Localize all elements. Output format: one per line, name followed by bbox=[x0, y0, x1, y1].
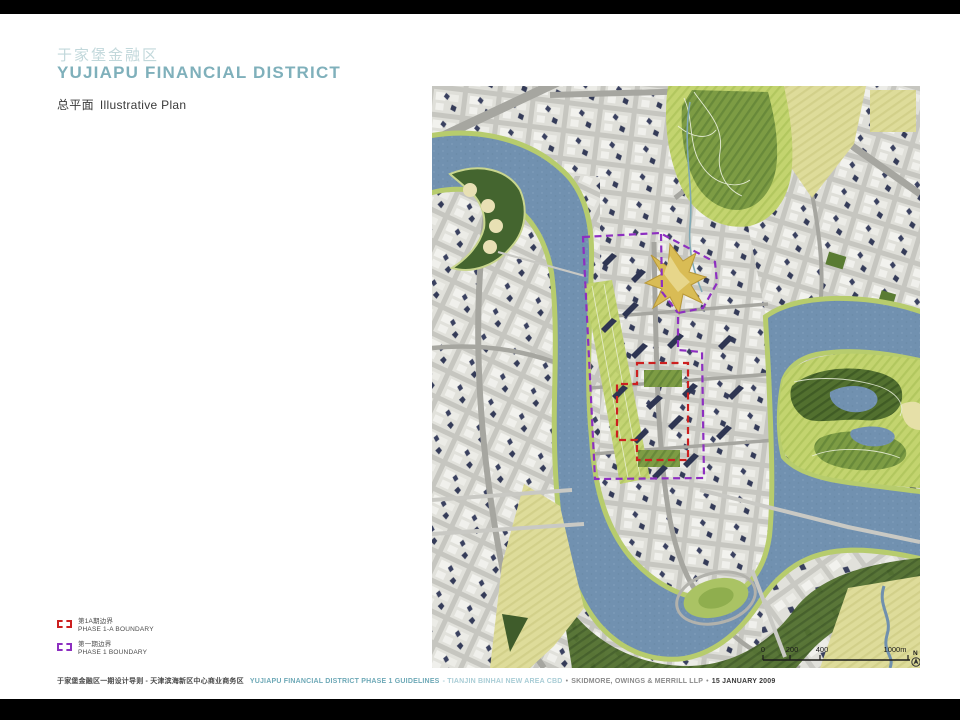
phase-1a-boundary-swatch bbox=[57, 620, 72, 628]
subtitle-english: Illustrative Plan bbox=[100, 98, 186, 112]
legend-label-zh: 第1A期边界 bbox=[78, 618, 154, 626]
scale-tick-400: 400 bbox=[816, 645, 829, 654]
legend-label: 第一期边界 PHASE 1 BOUNDARY bbox=[78, 641, 147, 657]
map-legend: 第1A期边界 PHASE 1-A BOUNDARY 第一期边界 PHASE 1 … bbox=[57, 618, 154, 664]
slide-footer: 于家堡金融区一期设计导则 - 天津滨海新区中心商业商务区YUJIAPU FINA… bbox=[57, 676, 937, 686]
page-title-chinese: 于家堡金融区 bbox=[57, 44, 159, 65]
footer-location: - TIANJIN BINHAI NEW AREA CBD bbox=[443, 678, 563, 685]
page-title-english: YUJIAPU FINANCIAL DISTRICT bbox=[57, 63, 341, 83]
footer-separator: • bbox=[566, 678, 569, 685]
scale-tick-1000m: 1000m bbox=[884, 645, 907, 654]
scale-tick-0: 0 bbox=[761, 645, 765, 654]
legend-label-en: PHASE 1 BOUNDARY bbox=[78, 649, 147, 657]
map-canvas: 0 200 400 1000m N bbox=[432, 86, 920, 668]
footer-separator: • bbox=[706, 678, 709, 685]
phase-1-boundary-swatch bbox=[57, 643, 72, 651]
legend-item-phase-1: 第一期边界 PHASE 1 BOUNDARY bbox=[57, 641, 154, 657]
svg-text:N: N bbox=[913, 650, 918, 657]
legend-label-en: PHASE 1-A BOUNDARY bbox=[78, 626, 154, 634]
footer-firm: SKIDMORE, OWINGS & MERRILL LLP bbox=[571, 678, 703, 685]
footer-project-en: YUJIAPU FINANCIAL DISTRICT PHASE 1 GUIDE… bbox=[250, 678, 440, 685]
scale-tick-200: 200 bbox=[786, 645, 799, 654]
legend-label: 第1A期边界 PHASE 1-A BOUNDARY bbox=[78, 618, 154, 634]
slide-page: 于家堡金融区 YUJIAPU FINANCIAL DISTRICT 总平面Ill… bbox=[0, 14, 960, 699]
subtitle-chinese: 总平面 bbox=[57, 98, 94, 112]
footer-date: 15 JANUARY 2009 bbox=[712, 678, 776, 685]
illustrative-plan-map: 0 200 400 1000m N bbox=[432, 86, 920, 668]
legend-label-zh: 第一期边界 bbox=[78, 641, 147, 649]
page-subtitle: 总平面Illustrative Plan bbox=[57, 96, 186, 113]
footer-project-zh: 于家堡金融区一期设计导则 - 天津滨海新区中心商业商务区 bbox=[57, 678, 244, 685]
legend-item-phase-1a: 第1A期边界 PHASE 1-A BOUNDARY bbox=[57, 618, 154, 634]
